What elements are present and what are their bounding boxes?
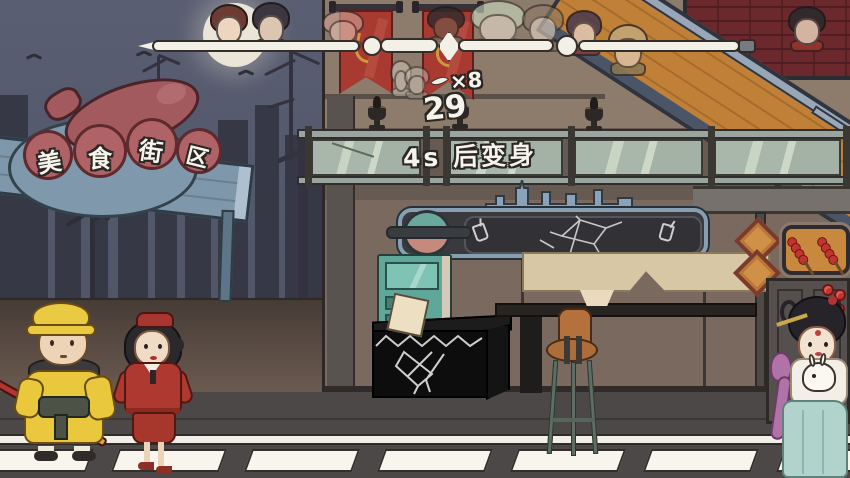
game-scene-food-street: 4s 后变身 bbox=[0, 0, 850, 478]
entrance-sign: 由此进入 美 食 街 区 bbox=[0, 80, 270, 310]
monkey-mouth bbox=[60, 355, 67, 358]
stewardess-leg bbox=[158, 442, 164, 468]
monkey-shoe bbox=[72, 451, 96, 461]
sign-char-label: 食 bbox=[76, 139, 124, 174]
white-rabbit bbox=[802, 362, 836, 392]
hanfu-hair-flower bbox=[828, 296, 837, 305]
plank-end-cap bbox=[233, 166, 251, 219]
stewardess-skirt bbox=[132, 412, 176, 444]
stewardess-hair-curl bbox=[172, 338, 184, 352]
hanfu-eye bbox=[824, 342, 828, 347]
sign-pole bbox=[218, 210, 234, 302]
stewardess-heel bbox=[156, 466, 172, 474]
progress-staff bbox=[0, 0, 850, 70]
stewardess-hat bbox=[136, 312, 174, 328]
monkey-shoe bbox=[34, 451, 58, 461]
staff-end-cap bbox=[738, 39, 756, 53]
monkey-hat-brim bbox=[26, 324, 96, 336]
stewardess-eye bbox=[158, 344, 162, 349]
stewardess-lips bbox=[150, 356, 157, 360]
monkey-eye bbox=[50, 340, 54, 346]
staff-leaf-joint bbox=[438, 31, 460, 62]
monkey-eye bbox=[70, 340, 74, 346]
hanfu-skirt bbox=[782, 400, 848, 478]
stewardess-eye bbox=[144, 344, 148, 349]
stewardess-tie bbox=[150, 370, 156, 384]
character-stewardess[interactable] bbox=[112, 312, 196, 472]
character-hanfu-lady[interactable] bbox=[768, 292, 850, 478]
stewardess-leg bbox=[144, 442, 150, 464]
hanfu-eye bbox=[808, 342, 812, 347]
stewardess-face bbox=[134, 330, 170, 366]
hanfu-forehead-mark bbox=[815, 330, 821, 336]
sign-char-label: 街 bbox=[126, 129, 176, 170]
sign-title-char: 食 bbox=[73, 124, 127, 178]
character-monkey-king[interactable] bbox=[8, 300, 123, 468]
monkey-belt-strap bbox=[54, 414, 68, 440]
stewardess-heel bbox=[138, 462, 154, 470]
